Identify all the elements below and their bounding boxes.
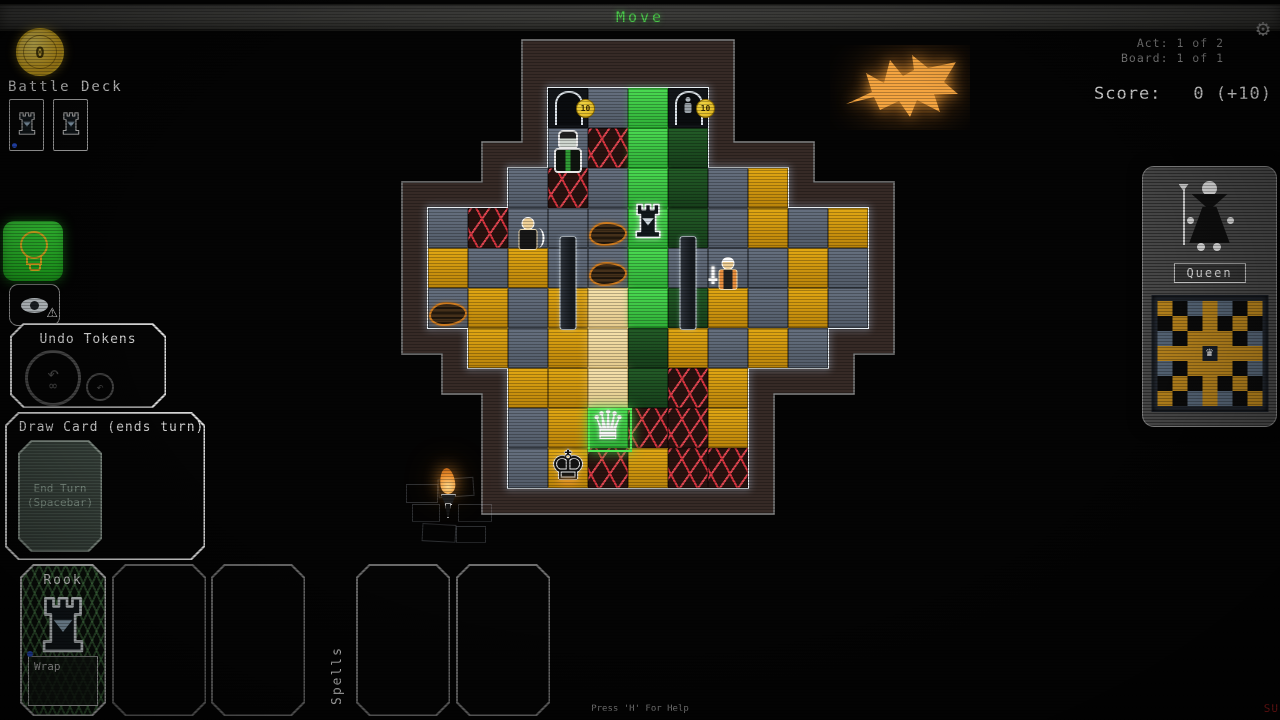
draw-panel-title: Draw Card (ends turn): [19, 420, 204, 435]
board-tile[interactable]: [668, 128, 708, 168]
mini-board-cell: [1202, 316, 1217, 331]
mini-board-cell: [1157, 361, 1172, 376]
board-tile[interactable]: [548, 328, 588, 368]
board-tile[interactable]: [828, 288, 868, 328]
mini-board-cell: [1232, 301, 1247, 316]
mini-board-cell: [1187, 346, 1202, 361]
board-label: Board: 1 of 1: [1121, 51, 1224, 66]
mini-board-cell: [1247, 316, 1262, 331]
board-tile[interactable]: [708, 208, 748, 248]
end-turn-label-line1: End Turn: [34, 482, 87, 496]
score-label: Score:: [1094, 84, 1161, 104]
empty-card-slot[interactable]: [211, 564, 305, 716]
mini-board-cell: [1202, 361, 1217, 376]
board-tile[interactable]: [508, 248, 548, 288]
board-tile[interactable]: [708, 368, 748, 408]
board-tile[interactable]: [708, 328, 748, 368]
mini-board-cell: [1232, 376, 1247, 391]
door-coin-badge: 10: [576, 99, 595, 118]
mini-board-cell: [1232, 331, 1247, 346]
card-ability-label: Wrap: [34, 660, 97, 673]
board-tile[interactable]: [588, 448, 628, 488]
rubble-piece: [429, 302, 467, 326]
board-tile[interactable]: [828, 208, 868, 248]
board-tile[interactable]: [588, 128, 628, 168]
king-glow: [551, 476, 585, 488]
mini-board-cell: [1172, 346, 1187, 361]
board-tile[interactable]: [588, 368, 628, 408]
board-tile[interactable]: [788, 208, 828, 248]
mini-board-cell: [1247, 301, 1262, 316]
board-tile[interactable]: [708, 448, 748, 488]
mini-board-cell: [1247, 376, 1262, 391]
piece-name-label: Queen: [1173, 263, 1245, 283]
board-tile[interactable]: [748, 328, 788, 368]
board-tile[interactable]: [668, 328, 708, 368]
board-tile[interactable]: [828, 248, 868, 288]
torch-stem: [445, 503, 451, 518]
board-tile[interactable]: [548, 168, 588, 208]
door-coin-badge: 10: [696, 99, 715, 118]
mini-board-cell: [1187, 376, 1202, 391]
board-tile[interactable]: [508, 408, 548, 448]
brick-outline: [456, 526, 486, 543]
mini-queen-icon: ♛: [1202, 346, 1217, 361]
mini-board-cell: [1157, 376, 1172, 391]
card-ability-box: Wrap: [28, 656, 98, 706]
act-label: Act: 1 of 2: [1121, 36, 1224, 51]
movement-preview-board: ♛: [1151, 295, 1268, 412]
board-tile[interactable]: [468, 208, 508, 248]
empty-card-slot[interactable]: [112, 564, 206, 716]
undo-arrow-icon[interactable]: ↶: [86, 373, 114, 401]
mini-board-cell: [1217, 346, 1232, 361]
mini-board-cell: [1202, 376, 1217, 391]
board-tile[interactable]: [628, 328, 668, 368]
score-value: 0 (+10): [1193, 84, 1272, 104]
board-tile[interactable]: [508, 168, 548, 208]
watermark-text: SU: [1264, 702, 1279, 715]
undo-tokens-panel: Undo Tokens ↶∞ ↶: [10, 323, 166, 408]
mini-board-cell: [1247, 346, 1262, 361]
score-row: Score: 0 (+10): [1094, 84, 1272, 104]
undo-infinity-icon[interactable]: ↶∞: [25, 350, 81, 406]
board-tile[interactable]: [588, 168, 628, 208]
board-tile[interactable]: [628, 368, 668, 408]
rubble-piece: [589, 262, 627, 286]
board-tile[interactable]: [588, 288, 628, 328]
mini-board-cell: [1172, 376, 1187, 391]
hint-button[interactable]: [3, 221, 63, 281]
mini-board-cell: [1187, 316, 1202, 331]
board-tile[interactable]: [468, 248, 508, 288]
help-hint-text: Press 'H' For Help: [0, 704, 1280, 714]
mini-board-cell: [1172, 361, 1187, 376]
mini-board-cell: [1172, 301, 1187, 316]
scepter-top: [1179, 184, 1189, 191]
board-tile[interactable]: [428, 208, 468, 248]
board-tile[interactable]: [548, 368, 588, 408]
board-tile[interactable]: [748, 168, 788, 208]
pillar-piece: [560, 236, 577, 330]
mini-board-cell: [1157, 316, 1172, 331]
board-tile[interactable]: [788, 248, 828, 288]
card-marker-dot: [27, 651, 33, 657]
mini-board-cell: [1202, 301, 1217, 316]
mini-board-cell: [1172, 391, 1187, 406]
mini-board-cell: ♛: [1202, 346, 1217, 361]
mini-board-cell: [1172, 331, 1187, 346]
draw-card-panel: Draw Card (ends turn) End Turn (Spacebar…: [5, 412, 205, 560]
mini-board-cell: [1232, 391, 1247, 406]
king-piece[interactable]: ♚: [550, 446, 586, 486]
battle-deck-cards: [9, 99, 88, 151]
board-tile[interactable]: [468, 328, 508, 368]
mini-board-cell: [1247, 391, 1262, 406]
warning-icon: ⚠: [46, 306, 58, 321]
board-tile[interactable]: [508, 448, 548, 488]
bat-icon: [830, 45, 970, 130]
mini-board-cell: [1187, 391, 1202, 406]
brick-outline: [458, 504, 492, 522]
selected-piece-panel: Queen ♛: [1142, 166, 1277, 427]
sword-icon: [712, 266, 715, 284]
door-tile[interactable]: 10: [548, 88, 588, 128]
card-marker-dot: [12, 143, 17, 148]
board-tile[interactable]: [788, 328, 828, 368]
board-tile[interactable]: [588, 328, 628, 368]
wall-torch: [398, 446, 510, 558]
board-tile[interactable]: [508, 288, 548, 328]
queen-piece[interactable]: ♛: [590, 406, 626, 446]
scepter-icon: [1183, 189, 1186, 245]
coin-value: 0: [35, 43, 45, 62]
board-tile[interactable]: [628, 408, 668, 448]
hand-card-rook[interactable]: Rook Wrap: [20, 564, 106, 716]
queen-character-illustration: [1175, 181, 1245, 255]
eye-icon: ⚠: [21, 298, 48, 313]
battle-deck-label: Battle Deck: [8, 79, 123, 95]
board-tile[interactable]: [428, 248, 468, 288]
board-tile[interactable]: [508, 368, 548, 408]
end-turn-button[interactable]: End Turn (Spacebar): [18, 440, 102, 552]
mini-board-cell: [1172, 316, 1187, 331]
mini-board-cell: [1202, 331, 1217, 346]
torch-flame-icon: [439, 467, 457, 494]
brick-outline: [406, 484, 438, 503]
board-tile[interactable]: [508, 328, 548, 368]
mini-board-cell: [1217, 316, 1232, 331]
deck-card[interactable]: [53, 99, 88, 151]
swordsman-piece[interactable]: [719, 257, 738, 290]
mini-board-cell: [1157, 331, 1172, 346]
board-tile[interactable]: [708, 288, 748, 328]
mini-board-cell: [1217, 331, 1232, 346]
gear-icon[interactable]: ⚙: [1256, 18, 1270, 41]
gold-coin-icon: 0: [16, 28, 64, 76]
empty-card-slot[interactable]: [456, 564, 550, 716]
board-tile[interactable]: [748, 288, 788, 328]
rook-piece[interactable]: [631, 202, 665, 244]
board-tile[interactable]: [628, 88, 668, 128]
board-tile[interactable]: [668, 408, 708, 448]
mini-board-cell: [1232, 316, 1247, 331]
mini-board-cell: [1187, 361, 1202, 376]
deck-card[interactable]: [9, 99, 44, 151]
board-tile[interactable]: [548, 408, 588, 448]
pillar-piece: [680, 236, 697, 330]
board-tile[interactable]: [748, 208, 788, 248]
mini-board-cell: [1247, 331, 1262, 346]
mini-board-cell: [1232, 346, 1247, 361]
board-tile[interactable]: [748, 248, 788, 288]
turn-phase-title: Move: [616, 8, 664, 26]
mini-board-cell: [1157, 346, 1172, 361]
empty-card-slot[interactable]: [356, 564, 450, 716]
progress-info: Act: 1 of 2 Board: 1 of 1: [1121, 36, 1224, 66]
board-tile[interactable]: [668, 448, 708, 488]
board-tile[interactable]: [628, 448, 668, 488]
board-tile[interactable]: [788, 288, 828, 328]
rubble-piece: [589, 222, 627, 246]
undo-panel-title: Undo Tokens: [10, 332, 166, 347]
mini-board-cell: [1157, 391, 1172, 406]
mini-board-cell: [1217, 376, 1232, 391]
board-tile[interactable]: [628, 128, 668, 168]
board-tile[interactable]: [628, 288, 668, 328]
board-tile[interactable]: [708, 408, 748, 448]
mini-board-cell: [1187, 331, 1202, 346]
turn-phase-bar: Move: [0, 4, 1280, 31]
mini-board-cell: [1202, 391, 1217, 406]
board-tile[interactable]: [708, 168, 748, 208]
card-name: Rook: [20, 573, 106, 588]
board-tile[interactable]: [668, 168, 708, 208]
spells-label: Spells: [330, 595, 345, 705]
board-tile[interactable]: [628, 248, 668, 288]
archer-piece[interactable]: [519, 217, 538, 250]
mini-board-cell: [1187, 301, 1202, 316]
mini-board-cell: [1232, 361, 1247, 376]
mini-board-cell: [1217, 391, 1232, 406]
preview-button[interactable]: ⚠: [9, 284, 60, 326]
mini-board-cell: [1247, 361, 1262, 376]
brick-outline: [412, 504, 440, 522]
lightbulb-icon: [18, 231, 48, 271]
board-tile[interactable]: [668, 368, 708, 408]
mini-board-cell: [1157, 301, 1172, 316]
end-turn-label-line2: (Spacebar): [27, 496, 93, 510]
mini-board-cell: [1217, 301, 1232, 316]
board-tile[interactable]: [468, 288, 508, 328]
brick-outline: [422, 523, 457, 543]
imp-piece[interactable]: [554, 130, 582, 173]
mini-board-cell: [1217, 361, 1232, 376]
dweller-piece: [684, 97, 693, 113]
